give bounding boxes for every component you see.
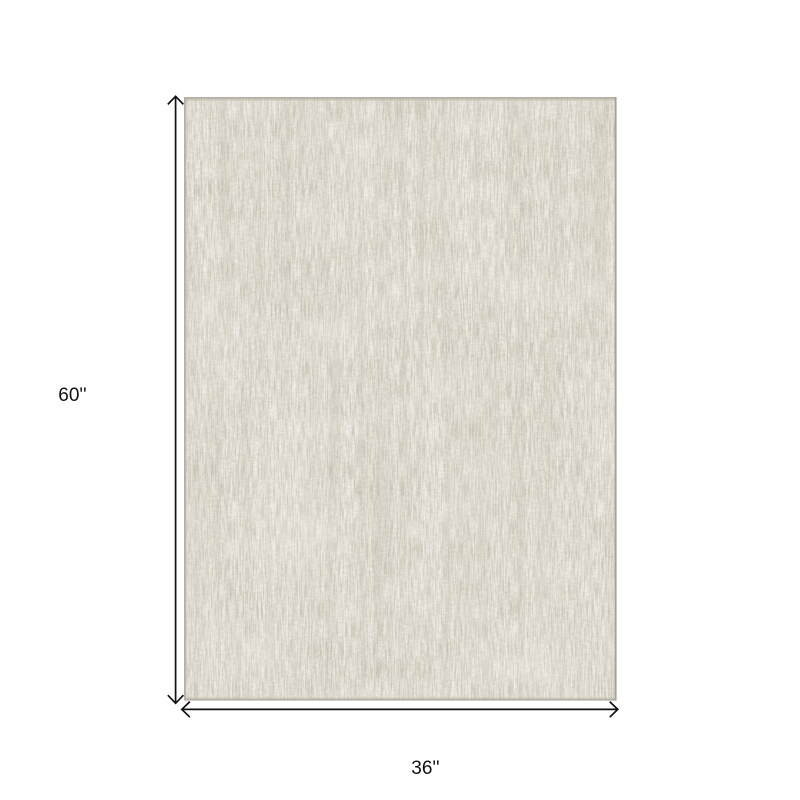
svg-text:60'': 60'' [58, 385, 86, 406]
svg-text:36'': 36'' [411, 758, 439, 779]
